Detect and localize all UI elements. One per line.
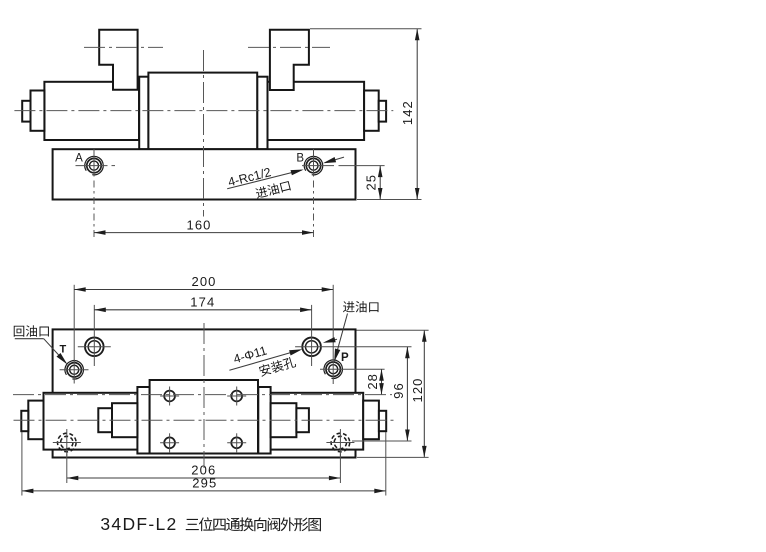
svg-text:142: 142 [400,100,415,125]
svg-text:P: P [341,352,349,364]
svg-text:174: 174 [190,295,215,310]
svg-text:25: 25 [364,174,379,191]
svg-text:34DF-L2: 34DF-L2 [100,514,177,534]
svg-text:160: 160 [187,217,212,232]
svg-text:B: B [296,153,304,165]
svg-text:28: 28 [365,373,380,390]
svg-text:A: A [75,152,83,164]
svg-text:96: 96 [391,382,406,399]
svg-text:120: 120 [410,378,425,403]
svg-text:200: 200 [192,274,217,289]
svg-text:295: 295 [192,476,217,491]
